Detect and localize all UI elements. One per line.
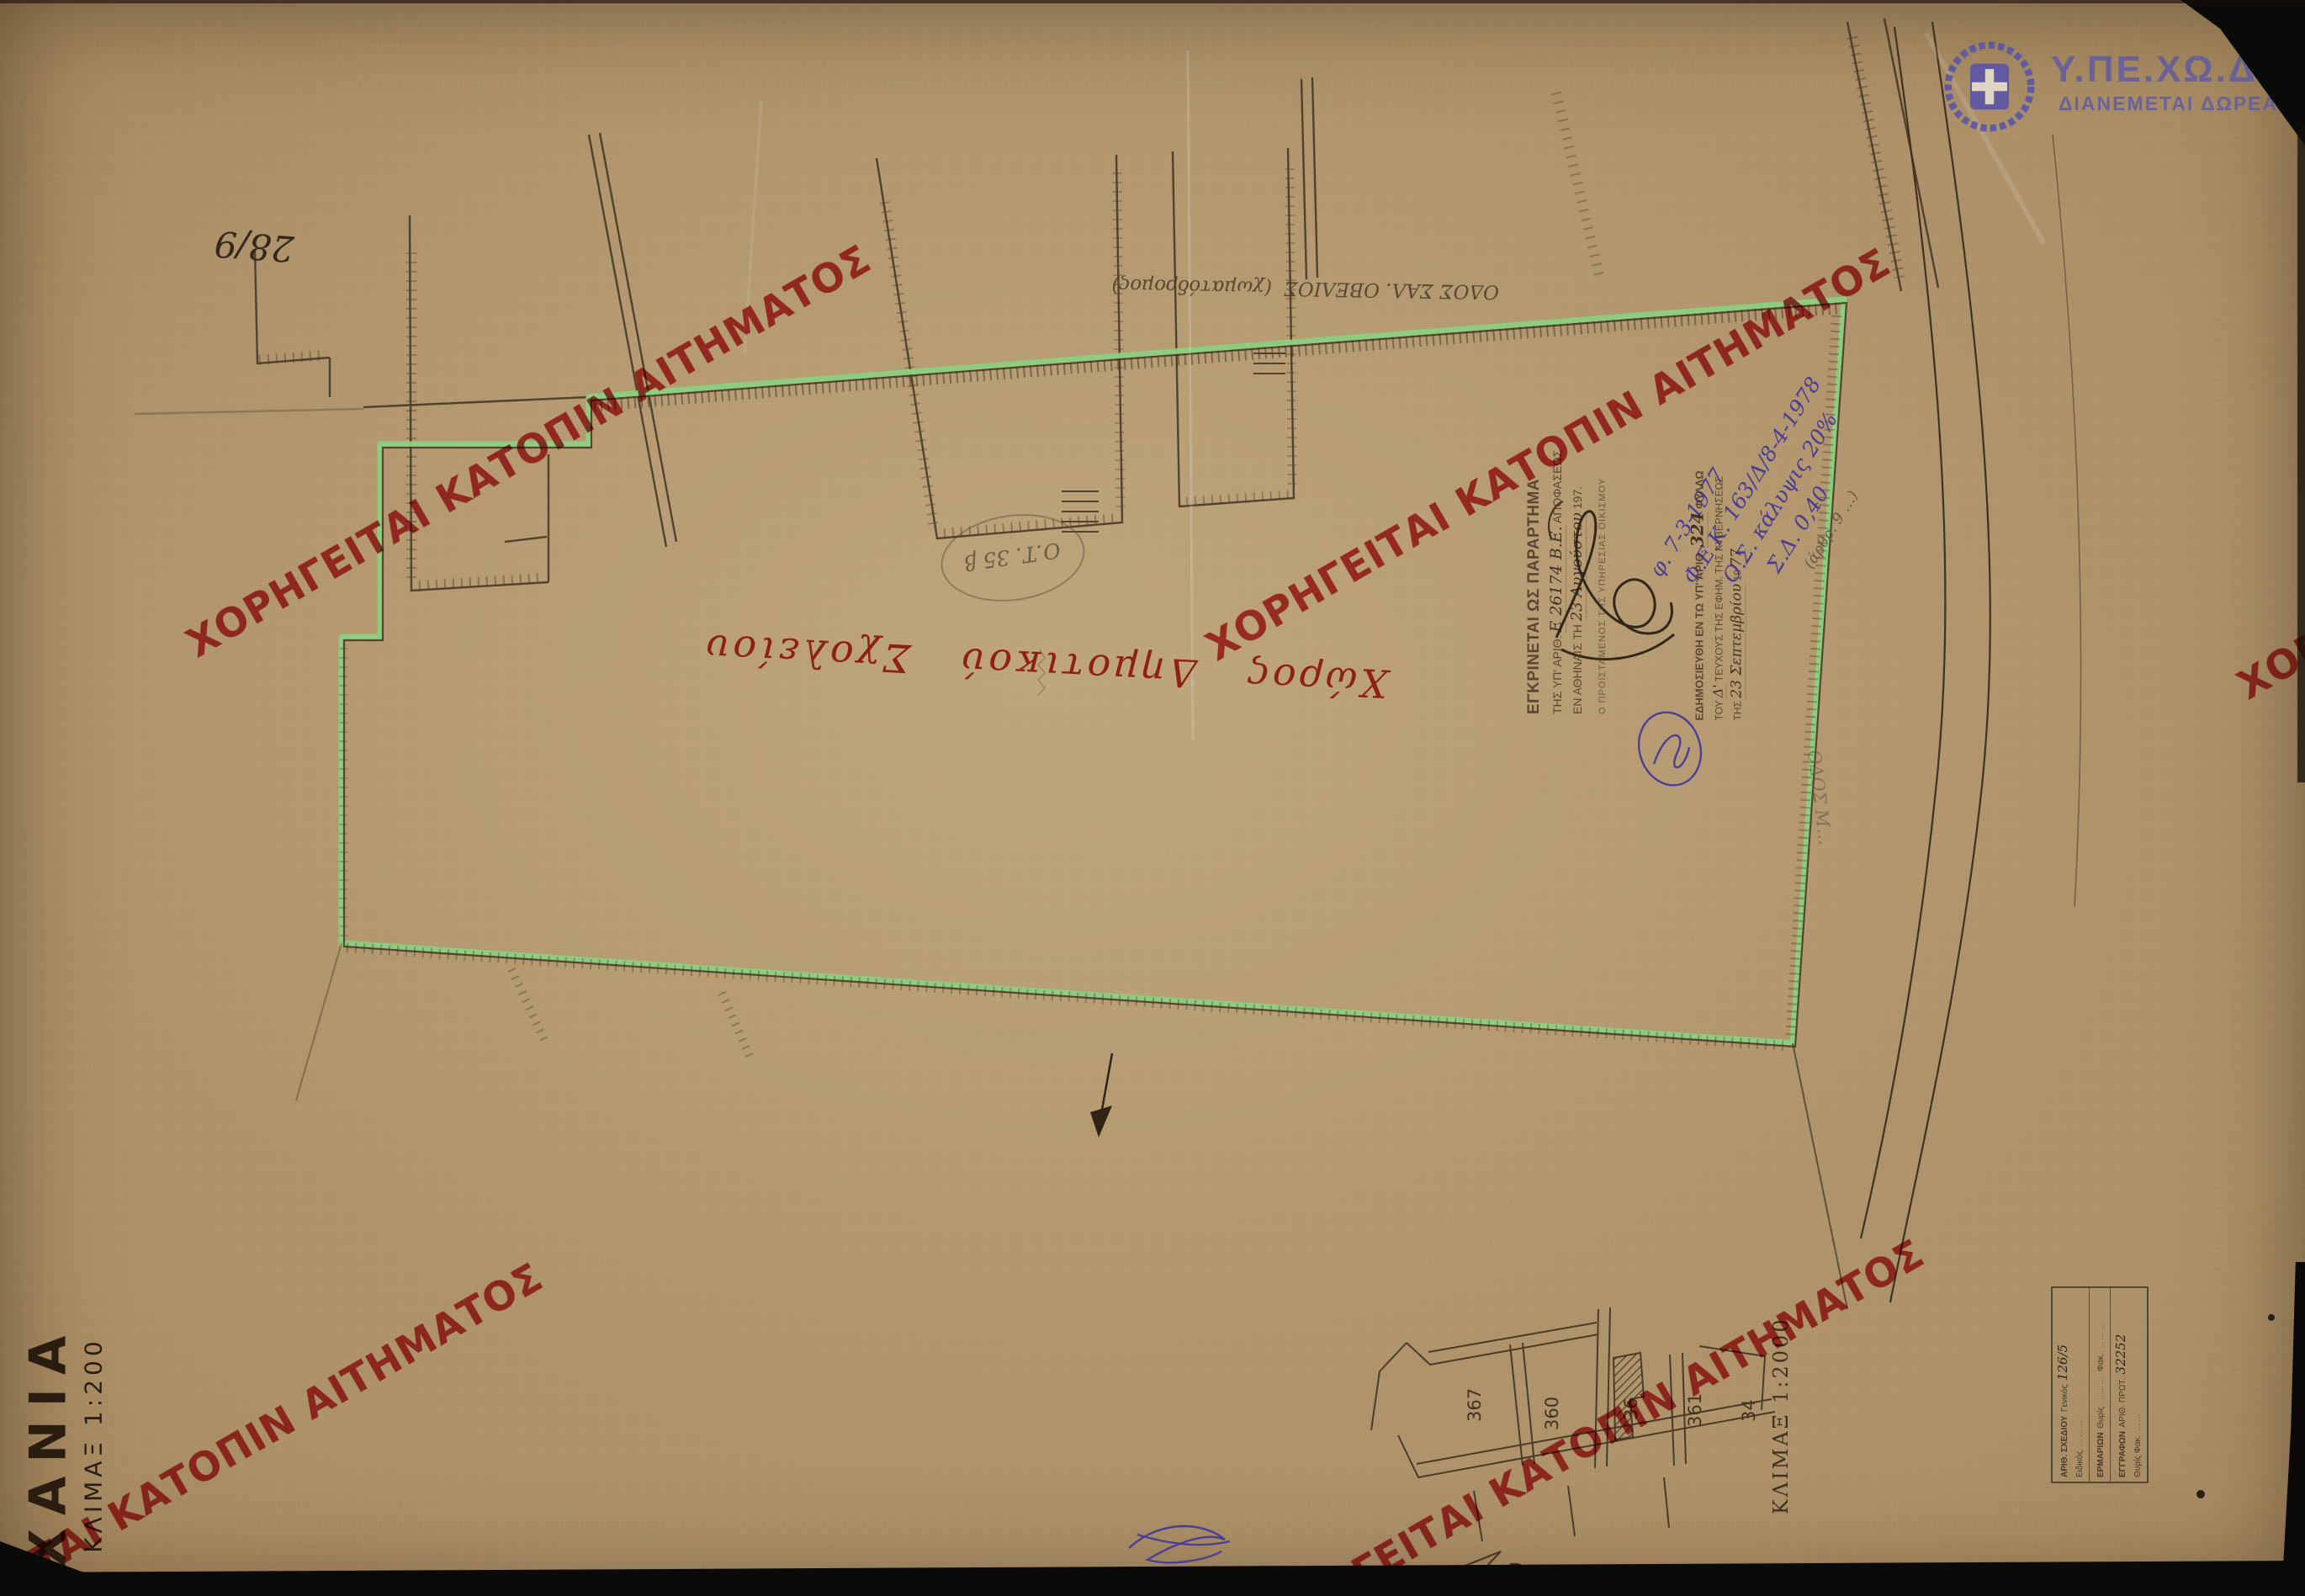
register-dots: …… xyxy=(2133,1413,2143,1431)
publication-line3-century: 19 xyxy=(1732,570,1744,581)
approval-line3-prefix: ΕΝ ΑΘΗΝΑΙΣ ΤΗ xyxy=(1571,624,1584,714)
scan-edge-bottom xyxy=(0,1561,2305,1596)
publication-line2-suffix: ΤΕΥΧΟΥΣ ΤΗΣ ΕΦΗΜ. ΤΗΣ ΚΥΒΕΡΝΗΣΕΩΣ xyxy=(1714,476,1725,681)
publication-year: 77 xyxy=(1729,549,1746,567)
torn-edge-bottom-right xyxy=(2281,1262,2305,1596)
register-dots: ……… xyxy=(2096,1322,2106,1349)
side-road-label: ΟΔΟΣ Μ… xyxy=(1804,749,1836,846)
watermark-right-edge: ΧΟΡΗΓΕΙΤΑΙ ΚΑΤΟΠΙΝ ΑΙΤΗΜΑΤΟΣ xyxy=(2230,278,2305,709)
register-field: Θυρίς Φακ. xyxy=(2133,1435,2143,1477)
bottom-signature-scribble xyxy=(1129,1526,1230,1562)
inset-block-number: 360 xyxy=(1542,1397,1562,1430)
publication-line1-suffix: ΦΥΛΛΩ xyxy=(1693,470,1706,509)
register-row: ΕΓΓΡΑΦΩΝ ΑΡΙΘ. ΠΡΩΤ. 32252 Θυρίς Φακ. …… xyxy=(2110,1288,2147,1482)
register-row-label: ΕΡΜΑΡΙΩΝ xyxy=(2096,1432,2106,1477)
register-value: 126/5 xyxy=(2055,1344,2070,1381)
publication-line2-prefix: ΤΟΥ xyxy=(1714,701,1725,721)
block-ref-ellipse: Ο.Τ. 35 β xyxy=(935,506,1091,611)
register-row: ΕΡΜΑΡΙΩΝ Θυρίς ……… Φακ. ……… xyxy=(2089,1288,2110,1482)
corner-date-note: 28/9 xyxy=(213,223,295,269)
approval-line3-suffix: 197. xyxy=(1571,486,1584,509)
road-name: ΟΔΟΣ ΣΑΛ. ΟΒΕΛΙΟΣ xyxy=(1284,277,1499,302)
approval-line2-prefix: ΤΗΣ ΥΠ' ΑΡΙΘ. xyxy=(1550,635,1564,714)
gazette-series: Δ' xyxy=(1710,684,1727,697)
map-linework: 367 360 36 361 34 Β xyxy=(0,0,2305,1596)
free-distribution-label: ΔΙΑΝΕΜΕΤΑΙ ΔΩΡΕΑΝ xyxy=(2059,93,2294,115)
publication-line3-prefix: ΤΗΣ xyxy=(1732,701,1744,720)
parcel-label: Χώρος Δημοτικού Σχολείου xyxy=(882,634,1389,706)
mid-sheet-arrow xyxy=(1090,1053,1112,1137)
register-dots: ……… xyxy=(2075,1419,2085,1447)
register-protocol-number: 32252 xyxy=(2113,1334,2128,1375)
register-field: Γενικός xyxy=(2060,1385,2069,1412)
register-field: Θυρίς xyxy=(2096,1407,2106,1429)
block-ref-text: Ο.Τ. 35 β xyxy=(959,510,1066,602)
gazette-issue-number: 324 xyxy=(1688,512,1709,548)
inset-block-number: 367 xyxy=(1465,1388,1485,1422)
road-name-paren: (χωματόδρομος) xyxy=(1111,274,1272,299)
publication-line1-prefix: ΕΔΗΜΟΣΙΕΥΘΗ ΕΝ ΤΩ ΥΠ' ΑΡΙΘ. xyxy=(1693,550,1706,721)
approval-decision-number: Ε 26174 Β.Ε. xyxy=(1547,526,1566,632)
register-field: Φακ. xyxy=(2096,1354,2106,1372)
hellenic-emblem-icon xyxy=(1935,32,2044,141)
scanned-survey-sheet: 367 360 36 361 34 Β Υ xyxy=(0,0,2305,1596)
register-dots: ……… xyxy=(2096,1376,2106,1403)
approval-signer-title: Ο ΠΡΟΪΣΤΑΜΕΝΟΣ ΤΗΣ ΥΠΗΡΕΣΙΑΣ ΟΙΚΙΣΜΟΥ xyxy=(1598,428,1608,714)
register-row-label: ΕΓΓΡΑΦΩΝ xyxy=(2118,1431,2127,1477)
road-label: ΟΔΟΣ ΣΑΛ. ΟΒΕΛΙΟΣ (χωματόδρομος) xyxy=(1146,274,1499,302)
right-road-lines xyxy=(1793,22,2081,1309)
scan-edge-top xyxy=(0,0,2305,3)
scan-edge-right xyxy=(2297,126,2305,782)
approval-date: 23 Αυγούστου xyxy=(1568,512,1587,621)
register-row-label: ΑΡΙΘ. ΣΧΕΔΙΟΥ xyxy=(2060,1416,2069,1477)
inset-block-number: 34 xyxy=(1739,1399,1759,1422)
watermark-bottom-right: ΧΟΡΗΓΕΙΤΑΙ ΚΑΤΟΠΙΝ ΑΙΤΗΜΑΤΟΣ xyxy=(1232,1231,1933,1596)
register-field: Ειδικός xyxy=(2075,1450,2085,1477)
inset-scale-label: ΚΛΙΜΑΞ 1:2000 xyxy=(1769,1363,1793,1514)
register-field: ΑΡΙΘ. ΠΡΩΤ. xyxy=(2118,1378,2127,1428)
register-row: ΑΡΙΘ. ΣΧΕΔΙΟΥ Γενικός 126/5 Ειδικός ……… xyxy=(2053,1288,2089,1482)
paper-creases xyxy=(744,34,2275,1498)
publication-date: 23 Σεπτεμβρίου xyxy=(1729,584,1746,698)
watermark-upper-left: ΧΟΡΗΓΕΙΤΑΙ ΚΑΤΟΠΙΝ ΑΙΤΗΜΑΤΟΣ xyxy=(179,236,880,667)
publication-stamp: ΕΔΗΜΟΣΙΕΥΘΗ ΕΝ ΤΩ ΥΠ' ΑΡΙΘ. 324 ΦΥΛΛΩ ΤΟ… xyxy=(1688,415,1746,721)
register-box: ΑΡΙΘ. ΣΧΕΔΙΟΥ Γενικός 126/5 Ειδικός ……… … xyxy=(2051,1286,2149,1483)
